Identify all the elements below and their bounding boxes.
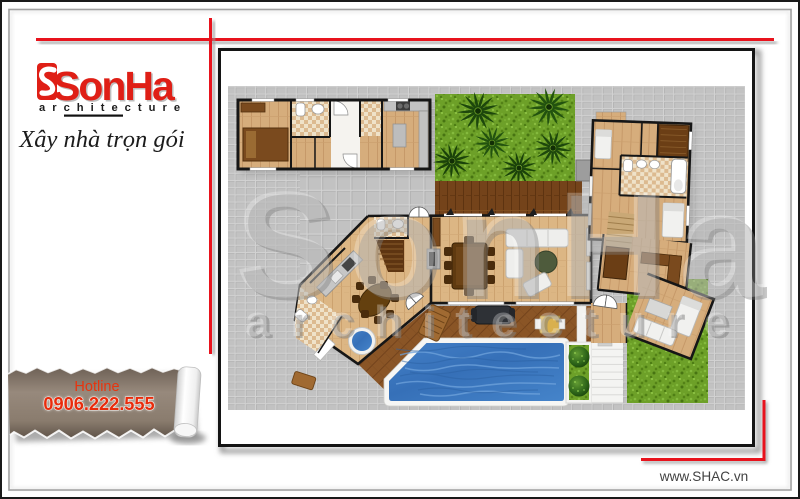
svg-text:www.SHAC.vn: www.SHAC.vn	[659, 469, 748, 484]
svg-text:Hotline: Hotline	[74, 379, 119, 395]
svg-text:Xây nhà trọn gói: Xây nhà trọn gói	[18, 126, 185, 153]
svg-text:architecture: architecture	[39, 102, 187, 114]
svg-text:architecture: architecture	[245, 297, 749, 346]
svg-text:0906.222.555: 0906.222.555	[43, 394, 154, 414]
